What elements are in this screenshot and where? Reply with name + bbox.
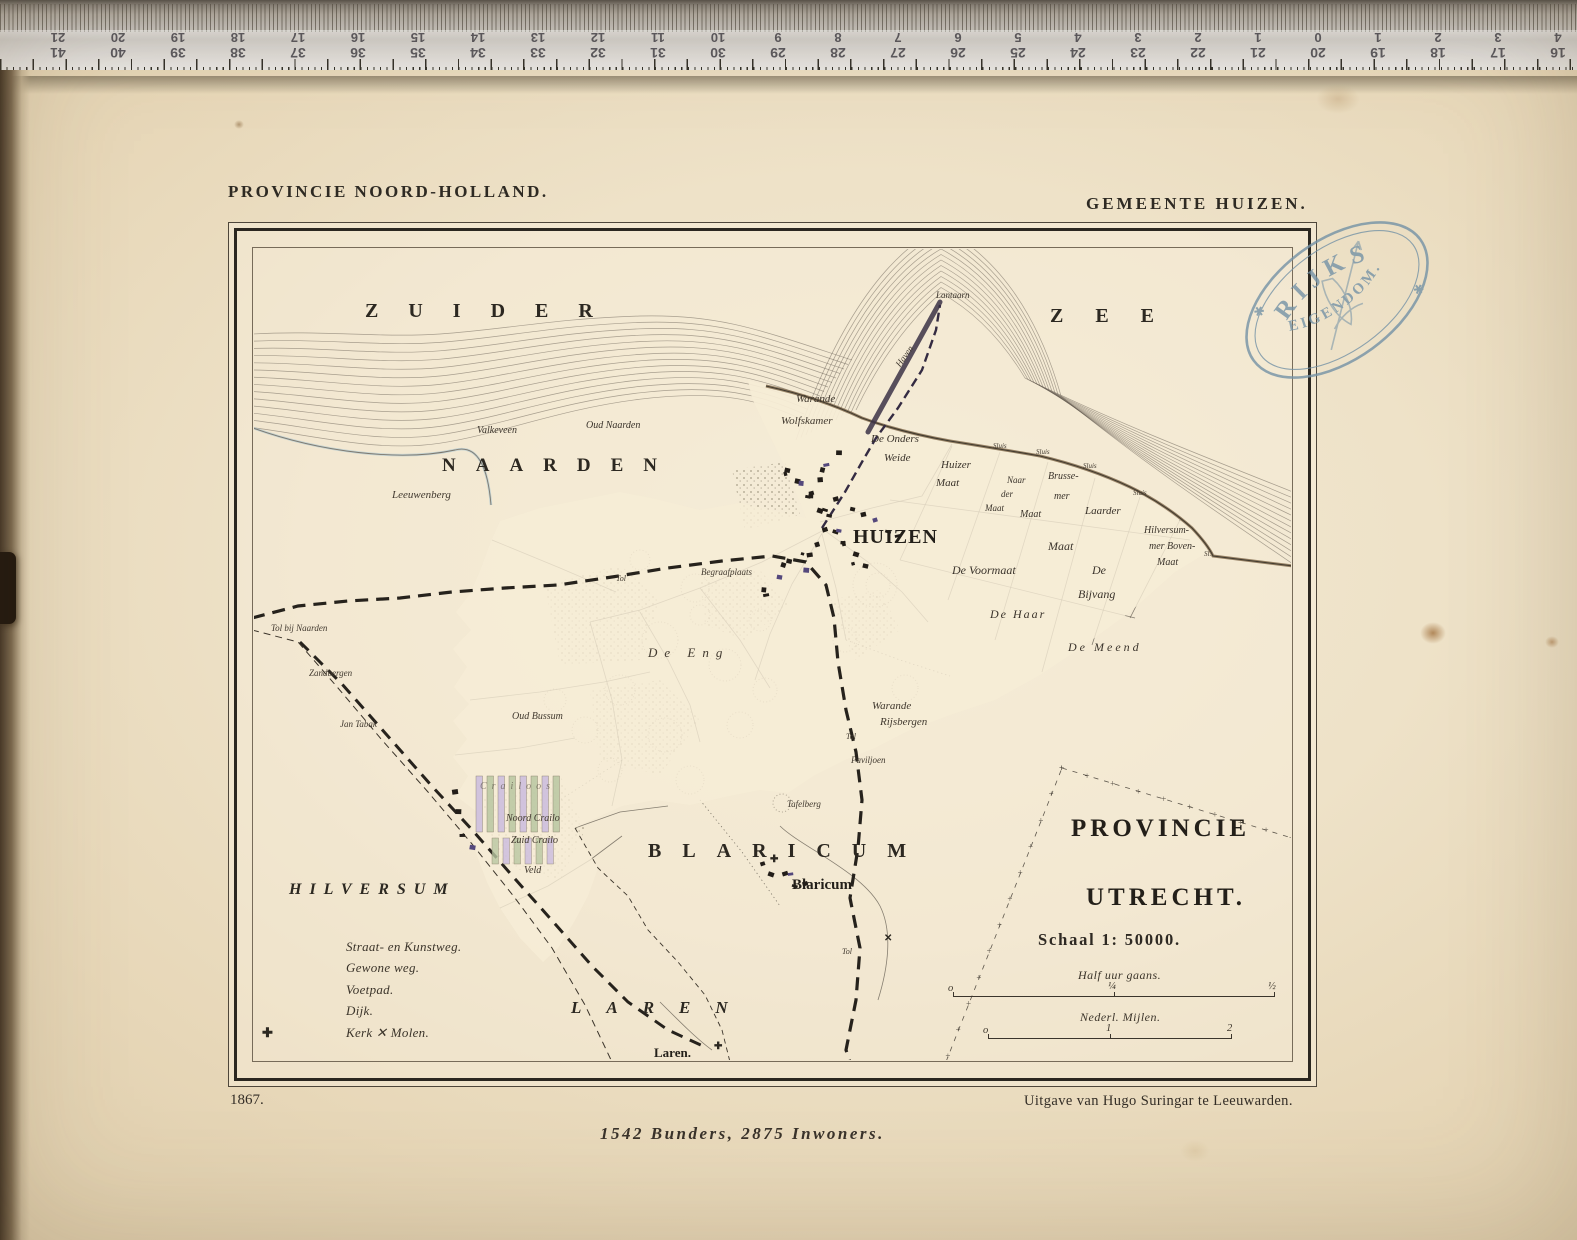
- scale-bar1: [953, 996, 1275, 997]
- legend-label: Gewone weg.: [346, 960, 419, 976]
- ruler-digit: 35: [410, 45, 426, 61]
- paper-edge-shadow: [0, 76, 1577, 94]
- binder-notch: [0, 552, 16, 624]
- ruler-digit: 21: [51, 30, 65, 45]
- ruler-digit: 40: [110, 45, 126, 61]
- ruler-digit: 11: [651, 30, 665, 45]
- scale-bar2: [988, 1038, 1232, 1039]
- ruler-digit: 41: [50, 45, 66, 61]
- scale-tick: o: [948, 983, 953, 994]
- ruler-digit: 27: [890, 45, 906, 61]
- legend-row: Voetpad.: [262, 979, 502, 1001]
- ruler-ticks-top: [0, 4, 1577, 32]
- legend-label: Voetpad.: [346, 982, 394, 998]
- ruler-digit: 1: [1374, 30, 1381, 45]
- publisher-line: Uitgave van Hugo Suringar te Leeuwarden.: [1024, 1093, 1293, 1110]
- ruler-digit: 0: [1314, 30, 1321, 45]
- ruler-digit: 7: [894, 30, 901, 45]
- ruler-digit: 5: [1014, 30, 1021, 45]
- ruler-digit: 34: [470, 45, 486, 61]
- ruler-digit: 26: [950, 45, 966, 61]
- ruler-digit: 17: [1490, 45, 1506, 61]
- scanned-map-photo: 2141204019391838173716361535143413331232…: [0, 0, 1577, 1240]
- ruler-digit: 14: [471, 30, 485, 45]
- ruler-digit: 2: [1194, 30, 1201, 45]
- ruler-digit: 16: [1550, 45, 1566, 61]
- legend-row: ✚ Kerk ✕ Molen.: [262, 1022, 502, 1044]
- ruler: 2141204019391838173716361535143413331232…: [0, 0, 1577, 80]
- ruler-digit: 39: [170, 45, 186, 61]
- ruler-digit: 3: [1494, 30, 1501, 45]
- ruler-digit: 8: [834, 30, 841, 45]
- scale-bar2-label: Nederl. Mijlen.: [1080, 1010, 1160, 1025]
- ruler-digit: 15: [411, 30, 425, 45]
- ruler-digit: 3: [1134, 30, 1141, 45]
- ruler-digit: 37: [290, 45, 306, 61]
- scale-tick: o: [983, 1025, 988, 1036]
- scale-tick: ½: [1268, 981, 1276, 992]
- ruler-digit: 16: [351, 30, 365, 45]
- legend-label: Kerk ✕ Molen.: [346, 1025, 429, 1041]
- ruler-digit: 23: [1130, 45, 1146, 61]
- scale-tick: ¼: [1108, 981, 1116, 992]
- ruler-digit: 19: [1370, 45, 1386, 61]
- ruler-digit: 30: [710, 45, 726, 61]
- ruler-digit: 18: [1430, 45, 1446, 61]
- ruler-digit: 19: [171, 30, 185, 45]
- ruler-digit: 20: [111, 30, 125, 45]
- ruler-digit: 6: [954, 30, 961, 45]
- ruler-digit: 33: [530, 45, 546, 61]
- ruler-digit: 13: [531, 30, 545, 45]
- map-year: 1867.: [230, 1092, 264, 1109]
- legend: Straat- en Kunstweg. Gewone weg. Voetpad…: [262, 936, 502, 1044]
- legend-row: Gewone weg.: [262, 958, 502, 980]
- title-province: PROVINCIE NOORD-HOLLAND.: [228, 182, 549, 202]
- legend-label: Dijk.: [346, 1003, 373, 1019]
- ruler-digit: 4: [1554, 30, 1561, 45]
- ruler-digit: 21: [1250, 45, 1266, 61]
- ruler-digit: 12: [591, 30, 605, 45]
- ruler-digit: 24: [1070, 45, 1086, 61]
- ruler-digit: 4: [1074, 30, 1081, 45]
- statistics-line: 1542 Bunders, 2875 Inwoners.: [600, 1124, 885, 1144]
- ruler-digit: 22: [1190, 45, 1206, 61]
- ruler-digit: 36: [350, 45, 366, 61]
- ruler-digit: 1: [1254, 30, 1261, 45]
- ruler-digit: 31: [650, 45, 666, 61]
- ruler-digit: 29: [770, 45, 786, 61]
- legend-row: Dijk.: [262, 1001, 502, 1023]
- kerk-cross-icon: ✚: [262, 1024, 346, 1042]
- ruler-digit: 25: [1010, 45, 1026, 61]
- ruler-digit: 20: [1310, 45, 1326, 61]
- ruler-digit: 17: [291, 30, 305, 45]
- legend-label: Straat- en Kunstweg.: [346, 939, 461, 955]
- legend-row: Straat- en Kunstweg.: [262, 936, 502, 958]
- scan-left-edge: [0, 70, 30, 1240]
- ruler-digit: 28: [830, 45, 846, 61]
- scale-bar1-label: Half uur gaans.: [1078, 968, 1161, 983]
- title-gemeente: GEMEENTE HUIZEN.: [1086, 194, 1308, 214]
- scale-tick: 2: [1227, 1023, 1232, 1034]
- scale-title: Schaal 1: 50000.: [1038, 930, 1181, 950]
- ruler-digit: 9: [774, 30, 781, 45]
- ruler-digit: 32: [590, 45, 606, 61]
- ruler-digit: 38: [230, 45, 246, 61]
- ruler-digit: 10: [711, 30, 725, 45]
- scale-tick: 1: [1106, 1023, 1111, 1034]
- ruler-digit: 2: [1434, 30, 1441, 45]
- ruler-digit: 18: [231, 30, 245, 45]
